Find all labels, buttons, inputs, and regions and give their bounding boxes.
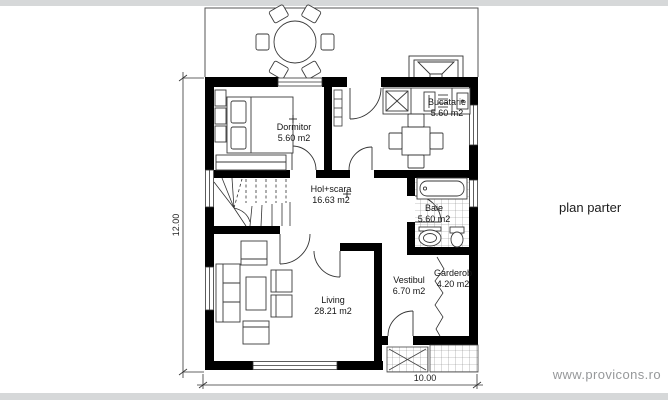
room-name: Vestibul <box>393 275 426 286</box>
room-name: Living <box>314 295 352 306</box>
room-label-garderob: Garderob 4.20 m2 <box>434 268 472 289</box>
room-label-dormitor: Dormitor 5.60 m2 <box>277 122 312 143</box>
room-name: Garderob <box>434 268 472 279</box>
dimension-height-label: 12.00 <box>171 214 181 237</box>
plan-title: plan parter <box>559 200 621 215</box>
floorplan-page: Dormitor 5.60 m2 Bucatarie 5.60 m2 Hol+s… <box>0 0 668 400</box>
room-name: Baie <box>418 203 451 214</box>
room-label-living: Living 28.21 m2 <box>314 295 352 316</box>
room-name: Dormitor <box>277 122 312 133</box>
room-area: 6.70 m2 <box>393 286 426 297</box>
dimension-width-label: 10.00 <box>414 373 437 383</box>
room-label-hol: Hol+scara 16.63 m2 <box>311 184 352 205</box>
room-area: 5.60 m2 <box>428 108 466 119</box>
room-area: 28.21 m2 <box>314 306 352 317</box>
room-label-baie: Baie 5.60 m2 <box>418 203 451 224</box>
living-furniture <box>216 241 292 344</box>
room-area: 16.63 m2 <box>311 195 352 206</box>
room-label-vestibul: Vestibul 6.70 m2 <box>393 275 426 296</box>
room-area: 4.20 m2 <box>434 279 472 290</box>
watermark: www.provicons.ro <box>553 367 661 382</box>
terrace-table-icon <box>256 4 334 80</box>
chimney-icon <box>409 56 463 78</box>
staircase <box>214 178 290 226</box>
room-name: Bucatarie <box>428 97 466 108</box>
radiator-icon <box>334 90 342 126</box>
room-area: 5.60 m2 <box>418 214 451 225</box>
entrance-porch <box>387 345 478 372</box>
room-name: Hol+scara <box>311 184 352 195</box>
room-label-bucatarie: Bucatarie 5.60 m2 <box>428 97 466 118</box>
room-area: 5.60 m2 <box>277 133 312 144</box>
